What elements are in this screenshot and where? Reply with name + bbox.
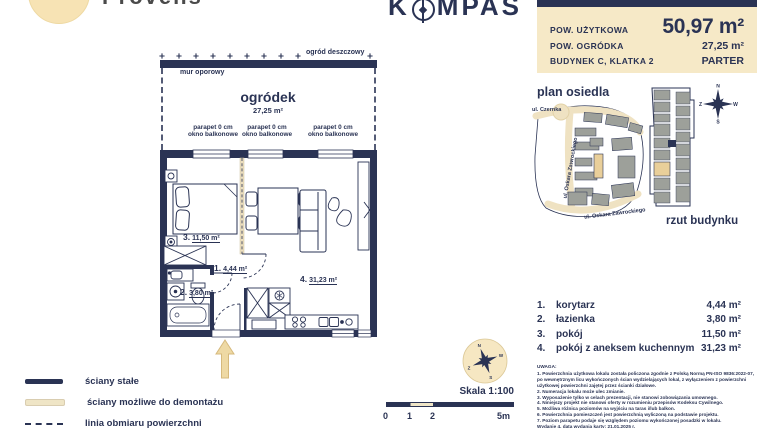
window-note-2: parapet 0 cm okno balkonowe	[232, 124, 302, 139]
kitchen-counter	[285, 315, 358, 329]
measure-line-swatch	[25, 423, 63, 425]
note-line: 1. Powierzchnia użytkowa lokalu została …	[537, 371, 758, 389]
retaining-wall	[160, 60, 377, 68]
building-plan-title: rzut budynku	[666, 215, 738, 227]
entrance-door-opening	[212, 330, 240, 337]
summary-row-building: BUDYNEK C, KLATKA 2 PARTER	[550, 55, 744, 67]
legend-item-measure-line: linia obmiaru powierzchni	[25, 413, 225, 428]
legend: ściany stałe ściany możliwe do demontażu…	[25, 371, 225, 428]
plan-compass-n: N	[478, 343, 481, 348]
garden-area-label: POW. OGRÓDKA	[550, 41, 624, 51]
plan-compass-w: Z	[468, 366, 471, 371]
scale-label: Skala 1:100	[386, 386, 514, 397]
garden-area-value: 27,25 m²	[702, 40, 744, 52]
usable-area-label: POW. UŻYTKOWA	[550, 25, 628, 35]
street-label-czernka: ul. Czernka	[532, 107, 561, 113]
garden-name-label: ogródek	[188, 89, 348, 105]
demountable-partition	[240, 158, 244, 254]
plant	[328, 198, 351, 227]
project-logo-kompas: KMPAS	[388, 0, 522, 22]
room-row-1: 1. korytarz 4,44 m²	[537, 299, 741, 313]
room-row-4: 4. pokój z aneksem kuchennym 31,23 m²	[537, 342, 741, 356]
apartment-card: Provens KMPAS POW. UŻYTKOWA 50,97 m² POW…	[0, 0, 760, 428]
room-label-4: 4.31,23 m²	[300, 274, 337, 284]
usable-area-value: 50,97 m²	[662, 15, 744, 39]
kitchen-tall-units	[247, 288, 290, 329]
floor-value: PARTER	[702, 55, 744, 67]
kompas-suffix: MPAS	[437, 0, 522, 22]
summary-panel: POW. UŻYTKOWA 50,97 m² POW. OGRÓDKA 27,2…	[537, 0, 757, 73]
window-note-3: parapet 0 cm okno balkonowe	[298, 124, 368, 139]
compass-w: Z	[699, 102, 702, 108]
building-plan	[646, 86, 700, 214]
building-core	[668, 140, 676, 147]
compass-rose-icon: N W S Z	[698, 84, 738, 124]
compass-e: W	[733, 102, 738, 108]
scale-bar	[386, 402, 514, 407]
summary-row-garden-area: POW. OGRÓDKA 27,25 m²	[550, 40, 744, 52]
highlighted-unit	[654, 162, 670, 176]
bottom-windows	[332, 330, 371, 337]
site-plan-title: plan osiedla	[537, 85, 609, 99]
building-label: BUDYNEK C, KLATKA 2	[550, 56, 654, 66]
kompas-prefix: K	[388, 0, 410, 22]
plan-compass-icon: N W S Z	[460, 336, 510, 386]
room-row-2: 2. łazienka 3,80 m²	[537, 313, 741, 327]
highlighted-building	[594, 154, 603, 178]
developer-logo	[28, 0, 90, 24]
compass-n: N	[716, 84, 720, 90]
compass-o-icon	[412, 0, 435, 21]
garden-area-label: 27,25 m²	[188, 106, 348, 115]
edition-note: Wydanie 4, data wydania karty: 21.01.202…	[537, 424, 758, 428]
compass-s: S	[716, 120, 720, 125]
room-list: 1. korytarz 4,44 m² 2. łazienka 3,80 m² …	[537, 299, 741, 356]
legend-item-demountable-walls: ściany możliwe do demontażu	[25, 392, 225, 413]
summary-row-usable-area: POW. UŻYTKOWA 50,97 m²	[550, 15, 744, 39]
plan-compass-s: S	[489, 375, 492, 380]
wardrobe	[164, 246, 206, 265]
disclaimer-notes: UWAGA: 1. Powierzchnia użytkowa lokalu z…	[537, 364, 758, 428]
legend-item-solid-walls: ściany stałe	[25, 371, 225, 392]
sofa	[300, 190, 326, 252]
balcony-windows	[193, 150, 353, 158]
room-row-3: 3. pokój 11,50 m²	[537, 328, 741, 342]
room-label-3: 3.11,50 m²	[183, 232, 220, 242]
bed	[173, 184, 237, 234]
sideboard	[358, 162, 370, 250]
solid-wall-swatch	[25, 379, 63, 384]
notes-title: UWAGA:	[537, 364, 758, 370]
demountable-wall-swatch	[25, 399, 65, 406]
room-label-2: 2.3,80 m²	[180, 287, 213, 297]
room-label-1: 1.4,44 m²	[214, 263, 247, 273]
developer-logo-text: Provens	[102, 0, 203, 10]
rain-garden-label: ogród deszczowy	[306, 49, 364, 56]
scale-tick-2: 2	[430, 411, 435, 421]
scale-tick-1: 1	[407, 411, 412, 421]
retaining-wall-label: mur oporowy	[180, 69, 224, 76]
scale-tick-0: 0	[383, 411, 388, 421]
scale-tick-5m: 5m	[497, 411, 510, 421]
